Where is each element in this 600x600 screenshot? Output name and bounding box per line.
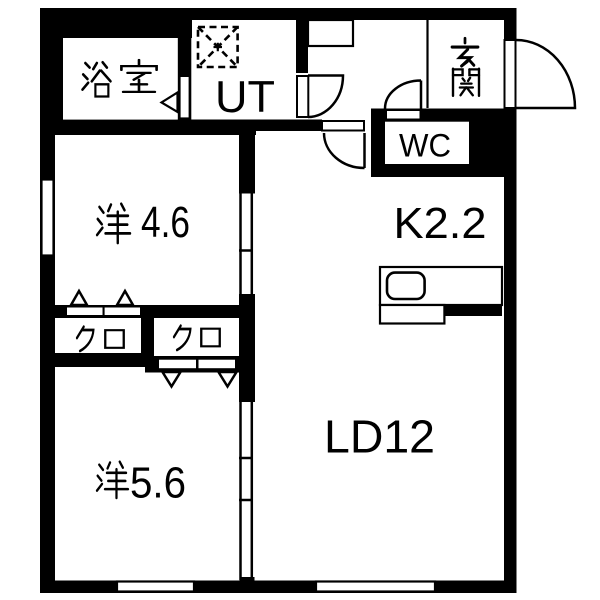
svg-text:WC: WC [399,128,451,164]
svg-text:LD12: LD12 [324,411,435,463]
svg-text:K2.2: K2.2 [394,199,487,248]
svg-text:4.6: 4.6 [141,199,190,247]
svg-text:UT: UT [215,73,275,122]
svg-text:5.6: 5.6 [130,460,186,508]
